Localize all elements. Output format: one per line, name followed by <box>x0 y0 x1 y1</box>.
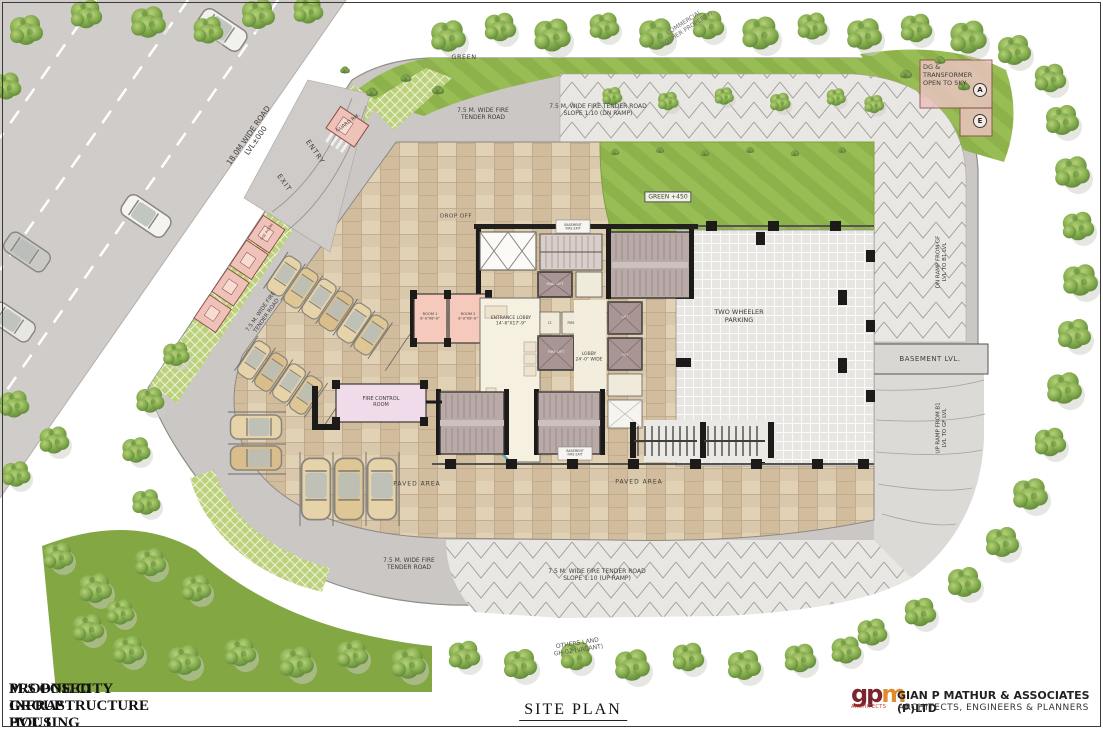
fire-panel-label: FIRE <box>567 321 574 325</box>
room1-label: ROOM 18'-0"X8'-0" <box>420 312 440 321</box>
fire-road-up-ramp-label: 7.5 M. WIDE FIRE TENDER ROADSLOPE 1:10 (… <box>548 568 646 582</box>
basement-lvl-label: BASEMENT LVL. <box>899 355 960 363</box>
shaft-marker-e: E <box>973 114 987 128</box>
fire-road-bottom-label: 7.5 M. WIDE FIRETENDER ROAD <box>383 557 435 571</box>
drop-off-label: DROP OFF <box>440 213 472 220</box>
logo-subtext: ARCHITECTS <box>851 704 886 710</box>
entrance-lobby-label: ENTRANCE LOBBY14'-6"X17'-9" <box>491 316 531 327</box>
firm-tagline: ARCHITECTS, ENGINEERS & PLANNERS <box>898 703 1089 713</box>
mail-lift-label: MAIL LIFT <box>546 282 563 286</box>
two-wheeler-label: TWO WHEELERPARKING <box>714 309 763 325</box>
lift2-label: LIFT <box>622 353 628 357</box>
basement-fire-exit-label-1: BASEMENTFIRE EXIT <box>564 223 581 231</box>
green-450-label: GREEN +450 <box>644 191 691 202</box>
green-label: GREEN <box>451 54 476 62</box>
fire-control-label: FIRE CONTROLROOM <box>363 396 400 408</box>
shaft-marker-a: A <box>973 83 987 97</box>
room2-label: ROOM 28'-0"X8'-0" <box>458 312 478 321</box>
lobby-label: LOBBY24'-0" WIDE <box>575 352 602 363</box>
fire-road-dn-ramp-label: 7.5 M. WIDE FIRE TENDER ROADSLOPE 1:10 (… <box>549 103 647 117</box>
basement-fire-exit-label-2: BASEMENTFIRE EXIT <box>566 449 583 457</box>
dg-transformer-label: DG &TRANSFORMEROPEN TO SKY <box>923 63 972 87</box>
up-ramp-label: UP RAMP FROM B1LVL TO GF LVL <box>934 402 947 453</box>
dn-ramp-label: DN RAMP FROM GFLVL TO B1 LVL <box>934 236 947 289</box>
site-plan-sheet: 18.0M WIDE ROADLVL±000 ENTRY EXIT GUARD … <box>0 0 1103 729</box>
paved-area-label-2: PAVED AREA <box>615 478 663 485</box>
firm-logo: gpm ARCHITECTS <box>851 683 897 706</box>
lt-panel-label: LT. <box>548 321 552 325</box>
fire-road-top-label: 7.5 M. WIDE FIRETENDER ROAD <box>457 107 509 121</box>
fire-lift-label: FIRE LIFT <box>548 350 564 354</box>
paved-area-label-1: PAVED AREA <box>393 480 441 487</box>
drawing-title: SITE PLAN <box>519 701 627 721</box>
lift1-label: LIFT <box>622 315 628 319</box>
